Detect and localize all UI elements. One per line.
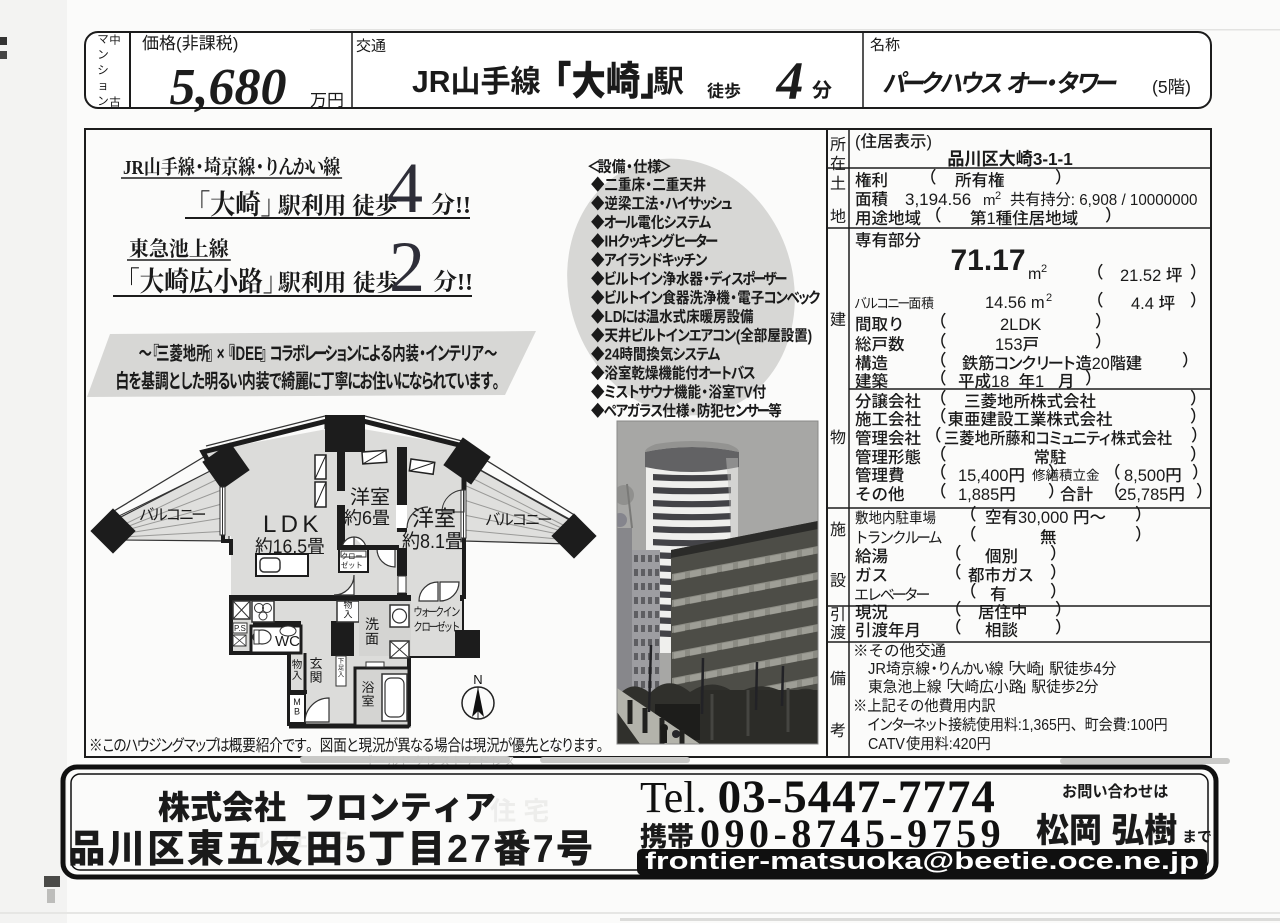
svg-text:(: ( [176,34,182,53]
svg-text:LD: LD [604,309,622,326]
svg-text:14.56 m: 14.56 m [985,294,1045,312]
svg-text:frontier-matsuoka@beetie.oce.n: frontier-matsuoka@beetie.oce.ne.jp [645,848,1199,875]
svg-text:3-1-1: 3-1-1 [1033,149,1073,170]
svg-text:2: 2 [1041,263,1047,275]
svg-text:25,785: 25,785 [1118,486,1168,504]
svg-text:6: 6 [362,508,372,528]
svg-text:(: ( [855,133,861,151]
svg-text:IH: IH [604,234,617,251]
svg-text:TV: TV [735,385,753,402]
svg-text:2: 2 [995,190,1001,202]
svg-text:18: 18 [991,373,1009,391]
svg-text:: 6,908 / 10000000: : 6,908 / 10000000 [1071,192,1198,209]
svg-text:1,885: 1,885 [958,486,999,504]
svg-text:8,500: 8,500 [1124,467,1165,485]
svg-text:21.52: 21.52 [1120,267,1161,285]
svg-text:!!: !! [457,270,473,296]
svg-text:8.1: 8.1 [420,531,445,553]
svg-text:JR: JR [868,661,886,678]
svg-text:2LDK: 2LDK [1000,316,1041,334]
svg-text:7: 7 [533,828,556,871]
svg-text:4.4: 4.4 [1131,295,1154,313]
svg-text:M: M [293,697,301,707]
svg-text:N: N [473,672,482,687]
svg-text:JR: JR [412,65,450,100]
svg-text:153: 153 [995,336,1023,354]
svg-text:30,000: 30,000 [1018,509,1068,527]
svg-text:IDEE: IDEE [232,344,263,365]
svg-text::100: :100 [1127,717,1154,734]
svg-text:2: 2 [1046,292,1052,304]
svg-text:4: 4 [776,51,804,111]
svg-text:JR: JR [123,157,144,180]
svg-text:(: ( [736,328,741,345]
svg-text::420: :420 [949,737,977,754]
svg-text:5: 5 [345,828,368,871]
svg-text:CATV: CATV [868,737,905,754]
svg-text:4: 4 [387,148,423,228]
svg-text:m: m [983,192,996,209]
svg-text:(5: (5 [1152,77,1168,97]
svg-text:B: B [294,706,300,716]
svg-text:15,400: 15,400 [958,467,1008,485]
svg-text:): ) [927,133,933,151]
svg-text:3,194.56: 3,194.56 [905,190,971,209]
svg-text:): ) [808,328,813,345]
svg-text:71.17: 71.17 [950,244,1025,277]
svg-text:1: 1 [987,210,996,228]
svg-text:×: × [217,344,225,365]
svg-text:): ) [1185,77,1191,97]
svg-text:m: m [1028,266,1041,283]
svg-text:4: 4 [1093,661,1101,678]
svg-text:LDK: LDK [263,511,323,538]
svg-text:20: 20 [1092,355,1110,373]
svg-text:): ) [233,34,239,53]
svg-text:!!: !! [455,193,471,219]
svg-text:1: 1 [1035,373,1044,391]
svg-text::1,365: :1,365 [1018,717,1057,734]
svg-text:5,680: 5,680 [170,59,287,116]
svg-text:27: 27 [447,828,493,871]
svg-text:2: 2 [1076,679,1084,696]
svg-text:16.5: 16.5 [273,535,307,557]
svg-text:24: 24 [604,347,619,364]
svg-text:P.S: P.S [234,624,246,633]
